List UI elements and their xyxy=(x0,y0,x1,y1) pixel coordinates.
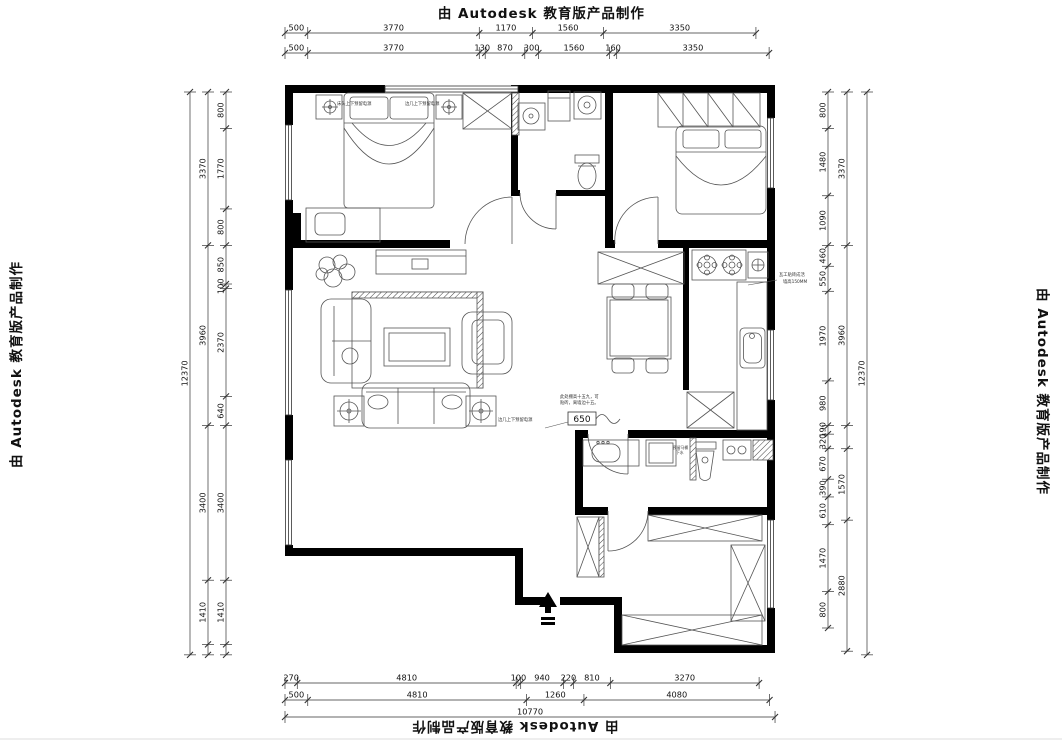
svg-text:500: 500 xyxy=(289,23,305,33)
svg-text:270: 270 xyxy=(283,673,299,683)
svg-text:3370: 3370 xyxy=(198,158,208,179)
bedroom-topright xyxy=(658,93,766,214)
svg-text:3770: 3770 xyxy=(383,23,404,33)
svg-text:3350: 3350 xyxy=(669,23,690,33)
bathroom-top xyxy=(518,91,601,189)
floorplan-drawing: 床头上下预留电源 边几上下预留电源 xyxy=(0,0,1062,740)
svg-text:800: 800 xyxy=(216,102,226,118)
svg-text:130: 130 xyxy=(474,43,490,53)
living-room xyxy=(316,250,512,428)
svg-text:1410: 1410 xyxy=(198,602,208,623)
dim-chain-right-outer: 12370 xyxy=(857,89,874,658)
svg-text:1410: 1410 xyxy=(216,602,226,623)
bedroom-bottom xyxy=(577,515,765,645)
svg-text:1090: 1090 xyxy=(818,210,828,231)
svg-text:100: 100 xyxy=(216,278,226,294)
svg-text:500: 500 xyxy=(289,690,305,700)
svg-text:550: 550 xyxy=(818,271,828,287)
svg-text:1570: 1570 xyxy=(837,474,847,495)
ceiling-note: 此处棚高十五九，可 贴砖，离墙边十五。 650 xyxy=(545,393,620,428)
svg-text:2370: 2370 xyxy=(216,332,226,353)
svg-text:此处棚高十五九，可: 此处棚高十五九，可 xyxy=(560,393,599,400)
walls xyxy=(285,85,775,653)
svg-text:3960: 3960 xyxy=(837,325,847,346)
svg-text:12370: 12370 xyxy=(180,360,190,386)
svg-text:3400: 3400 xyxy=(216,492,226,513)
svg-text:3960: 3960 xyxy=(198,325,208,346)
cad-floorplan-page: 由 Autodesk 教育版产品制作 由 Autodesk 教育版产品制作 由 … xyxy=(0,0,1062,740)
svg-text:300: 300 xyxy=(524,43,540,53)
svg-text:3270: 3270 xyxy=(674,673,695,683)
svg-text:10770: 10770 xyxy=(517,707,543,717)
svg-text:1560: 1560 xyxy=(564,43,585,53)
svg-text:850: 850 xyxy=(216,257,226,273)
svg-text:1170: 1170 xyxy=(495,23,516,33)
svg-text:3770: 3770 xyxy=(383,43,404,53)
bedroom-topleft xyxy=(306,93,519,242)
dining-room xyxy=(598,252,684,373)
svg-text:800: 800 xyxy=(818,102,828,118)
svg-text:980: 980 xyxy=(818,395,828,411)
svg-text:1560: 1560 xyxy=(558,23,579,33)
doors xyxy=(465,193,658,551)
svg-text:1470: 1470 xyxy=(818,548,828,569)
dim-chain-right-middle: 3370396015702880 xyxy=(837,89,854,654)
svg-text:220: 220 xyxy=(561,673,577,683)
svg-text:320: 320 xyxy=(818,434,828,450)
svg-text:800: 800 xyxy=(818,602,828,618)
svg-text:瓦工贴砖成活: 瓦工贴砖成活 xyxy=(779,271,805,278)
ceiling-dim-650: 650 xyxy=(573,415,590,425)
dim-chain-left-inner: 8001770800850100237064034001410 xyxy=(216,89,233,658)
windows xyxy=(286,86,774,608)
svg-text:3400: 3400 xyxy=(198,492,208,513)
svg-text:12370: 12370 xyxy=(857,360,867,386)
kitchen xyxy=(687,250,768,430)
svg-text:390: 390 xyxy=(818,480,828,496)
svg-text:3350: 3350 xyxy=(682,43,703,53)
svg-text:460: 460 xyxy=(818,248,828,264)
svg-text:670: 670 xyxy=(818,456,828,472)
svg-text:500: 500 xyxy=(289,43,305,53)
svg-text:940: 940 xyxy=(534,673,550,683)
svg-text:2880: 2880 xyxy=(837,575,847,596)
dim-chain-top-row-2: 500377013087030015601603350 xyxy=(282,43,772,60)
svg-text:100: 100 xyxy=(511,673,527,683)
svg-text:640: 640 xyxy=(216,403,226,419)
svg-text:墙高150MM: 墙高150MM xyxy=(783,278,808,285)
svg-text:4080: 4080 xyxy=(666,690,687,700)
svg-text:1480: 1480 xyxy=(818,152,828,173)
dim-chain-right-inner: 8001480109046055019709801903206703906101… xyxy=(818,89,835,631)
entry-arrow xyxy=(539,592,557,625)
svg-text:870: 870 xyxy=(497,43,513,53)
svg-text:4810: 4810 xyxy=(407,690,428,700)
dim-chain-top-row-1: 5003770117015603350 xyxy=(282,23,759,40)
svg-text:800: 800 xyxy=(216,219,226,235)
svg-text:610: 610 xyxy=(818,503,828,519)
note-bed-right-outlet: 边几上下预留电源 xyxy=(405,100,440,107)
dim-chain-bottom-row-1: 27048101009402208103270 xyxy=(282,673,762,690)
note-sofa-outlet: 边几上下预留电源 xyxy=(498,416,533,423)
dim-chain-left-middle: 3370396034001410 xyxy=(198,89,215,658)
svg-text:810: 810 xyxy=(584,673,600,683)
svg-text:1770: 1770 xyxy=(216,158,226,179)
note-bed-left-outlet: 床头上下预留电源 xyxy=(337,100,372,107)
svg-text:1260: 1260 xyxy=(545,690,566,700)
dim-chain-bottom-row-2: 500481012604080 xyxy=(282,690,773,707)
svg-text:贴砖，离墙边十五。: 贴砖，离墙边十五。 xyxy=(560,399,599,406)
svg-text:1970: 1970 xyxy=(818,326,828,347)
svg-text:4810: 4810 xyxy=(396,673,417,683)
dim-chain-left-outer: 12370 xyxy=(180,89,197,658)
note-toilet-line2: 下水 xyxy=(676,450,684,455)
dim-chain-bottom-row-3: 10770 xyxy=(282,707,778,724)
svg-text:3370: 3370 xyxy=(837,158,847,179)
svg-text:160: 160 xyxy=(605,43,621,53)
